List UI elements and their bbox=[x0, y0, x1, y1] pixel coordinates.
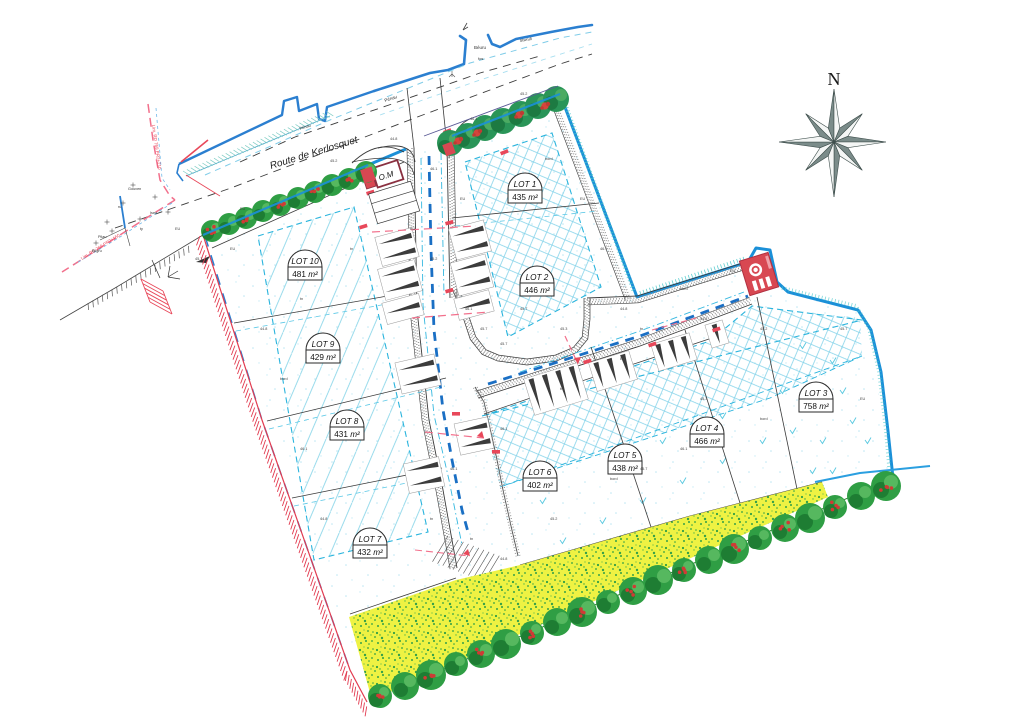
svg-text:44.8: 44.8 bbox=[320, 517, 327, 521]
svg-text:429 m²: 429 m² bbox=[310, 353, 336, 362]
svg-text:402 m²: 402 m² bbox=[527, 481, 553, 490]
svg-text:45.2: 45.2 bbox=[520, 92, 527, 96]
svg-text:481 m²: 481 m² bbox=[292, 270, 318, 279]
svg-text:tn: tn bbox=[560, 387, 563, 391]
svg-text:45.2: 45.2 bbox=[330, 159, 337, 163]
svg-text:45.3: 45.3 bbox=[560, 327, 567, 331]
svg-text:46.1: 46.1 bbox=[430, 167, 437, 171]
svg-text:LOT 1: LOT 1 bbox=[514, 180, 537, 189]
svg-text:435 m²: 435 m² bbox=[512, 193, 538, 202]
svg-text:bord: bord bbox=[760, 417, 768, 421]
svg-text:EU: EU bbox=[580, 197, 586, 201]
svg-text:EU: EU bbox=[410, 227, 416, 231]
svg-text:45.7: 45.7 bbox=[195, 257, 202, 261]
svg-text:44.8: 44.8 bbox=[390, 137, 397, 141]
svg-text:EU: EU bbox=[730, 269, 736, 273]
svg-text:Gouven: Gouven bbox=[128, 187, 141, 191]
svg-text:Iseu: Iseu bbox=[150, 211, 157, 215]
svg-text:46.1: 46.1 bbox=[300, 447, 307, 451]
svg-text:466 m²: 466 m² bbox=[694, 437, 720, 446]
svg-text:LOT 9: LOT 9 bbox=[312, 340, 335, 349]
svg-text:LOT 3: LOT 3 bbox=[805, 389, 828, 398]
svg-text:45.2: 45.2 bbox=[550, 517, 557, 521]
svg-text:EU: EU bbox=[860, 397, 866, 401]
svg-text:LOT 5: LOT 5 bbox=[614, 451, 637, 460]
svg-text:N: N bbox=[828, 69, 841, 89]
svg-text:EU: EU bbox=[230, 247, 236, 251]
svg-text:46.1: 46.1 bbox=[470, 117, 477, 121]
svg-text:LOT 7: LOT 7 bbox=[359, 535, 382, 544]
svg-text:bord: bord bbox=[545, 157, 553, 161]
svg-text:45.3: 45.3 bbox=[700, 397, 707, 401]
svg-text:45.7: 45.7 bbox=[480, 327, 487, 331]
svg-text:tn: tn bbox=[300, 297, 303, 301]
svg-text:EU: EU bbox=[240, 207, 246, 211]
svg-text:EU: EU bbox=[460, 197, 466, 201]
svg-text:46.1: 46.1 bbox=[465, 307, 472, 311]
svg-text:LOT 2: LOT 2 bbox=[526, 273, 549, 282]
svg-text:46.1: 46.1 bbox=[500, 427, 507, 431]
svg-text:438 m²: 438 m² bbox=[612, 464, 638, 473]
svg-text:431 m²: 431 m² bbox=[334, 430, 360, 439]
svg-text:758 m²: 758 m² bbox=[803, 402, 829, 411]
svg-text:Béuru: Béuru bbox=[474, 45, 487, 50]
svg-text:44.8: 44.8 bbox=[620, 307, 627, 311]
svg-text:LOT 10: LOT 10 bbox=[291, 257, 319, 266]
svg-text:LOT 4: LOT 4 bbox=[696, 424, 719, 433]
svg-text:45.2: 45.2 bbox=[760, 327, 767, 331]
svg-text:LOT 6: LOT 6 bbox=[529, 468, 552, 477]
svg-text:tn: tn bbox=[640, 327, 643, 331]
svg-text:46.1: 46.1 bbox=[680, 447, 687, 451]
svg-text:44.8: 44.8 bbox=[700, 317, 707, 321]
svg-text:45.7: 45.7 bbox=[520, 307, 527, 311]
svg-text:44.8: 44.8 bbox=[260, 327, 267, 331]
svg-text:45.7: 45.7 bbox=[640, 467, 647, 471]
svg-text:45.7: 45.7 bbox=[840, 327, 847, 331]
svg-text:bord: bord bbox=[680, 287, 688, 291]
svg-text:432 m²: 432 m² bbox=[357, 548, 383, 557]
svg-text:ru: ru bbox=[118, 205, 121, 209]
svg-text:LOT 8: LOT 8 bbox=[336, 417, 359, 426]
svg-text:Bilgru: Bilgru bbox=[92, 249, 102, 253]
svg-text:tn: tn bbox=[350, 247, 353, 251]
svg-text:44.8: 44.8 bbox=[500, 557, 507, 561]
svg-text:45.2: 45.2 bbox=[430, 257, 437, 261]
svg-text:46.1: 46.1 bbox=[450, 467, 457, 471]
svg-text:EU: EU bbox=[175, 227, 181, 231]
svg-text:ty: ty bbox=[140, 227, 143, 231]
svg-text:bord: bord bbox=[280, 377, 288, 381]
svg-text:446 m²: 446 m² bbox=[524, 286, 550, 295]
svg-text:bord: bord bbox=[610, 477, 618, 481]
svg-text:fos: fos bbox=[478, 56, 483, 61]
svg-text:46.1: 46.1 bbox=[600, 247, 607, 251]
svg-text:tn: tn bbox=[470, 537, 473, 541]
svg-text:45.7: 45.7 bbox=[500, 342, 507, 346]
svg-text:tn: tn bbox=[430, 517, 433, 521]
svg-text:EU: EU bbox=[620, 357, 626, 361]
svg-text:Pilau: Pilau bbox=[98, 235, 106, 239]
